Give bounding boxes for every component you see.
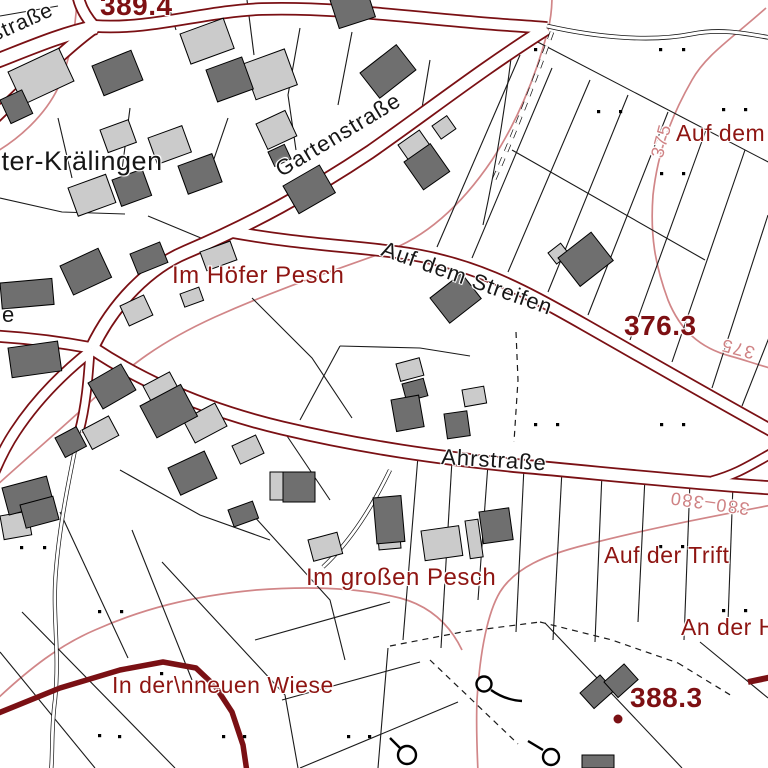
street-label-e-partial: e (2, 304, 15, 326)
area-label-auf-der-trift: Auf der Trift (604, 544, 729, 567)
spot-elevation-376: 376.3 (624, 312, 697, 340)
spot-elevation-389: 389.4 (100, 0, 173, 20)
area-label-im-grossen-pesch: Im großen Pesch (306, 566, 496, 590)
circle-symbols (390, 677, 559, 766)
spot-elevation-388: 388.3 (630, 684, 703, 712)
area-label-an-der-partial: An der H (681, 616, 768, 639)
area-label-auf-dem-partial: Auf dem (676, 122, 765, 145)
place-label-kraelingen: nter-Krälingen (0, 148, 163, 175)
area-label-in-der-neuen-wiese: In der\nneuen Wiese (112, 674, 334, 697)
area-label-im-hoefer-pesch: Im Höfer Pesch (172, 264, 344, 288)
topographic-map-canvas[interactable]: 389.4 straße nter-Krälingen Gartenstraße… (0, 0, 768, 768)
